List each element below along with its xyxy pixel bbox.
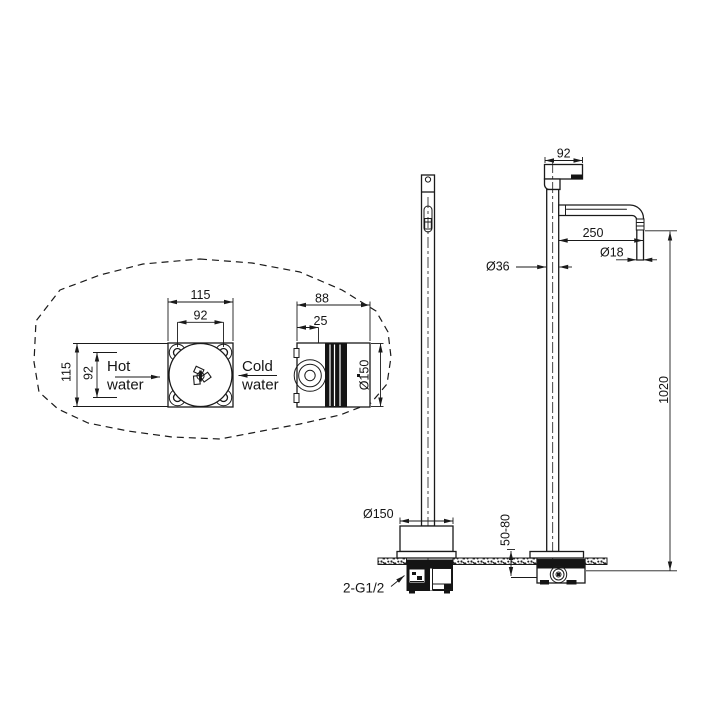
dim-spout-reach: 250 bbox=[559, 226, 644, 241]
dim-label-88: 88 bbox=[315, 292, 329, 306]
dim-label-115-width: 115 bbox=[191, 288, 211, 302]
valve-box-front-view: 115 92 115 92 Hot water bbox=[60, 288, 279, 407]
dim-column-height: 1020 bbox=[586, 231, 677, 571]
handle-hub bbox=[545, 179, 561, 190]
hot-water-label: Hot water bbox=[106, 358, 160, 394]
dim-spout-diameter: Ø18 bbox=[600, 246, 657, 260]
cold-label-line1: Cold bbox=[242, 358, 273, 375]
spout-collar bbox=[636, 219, 644, 230]
dim-label-92-h: 92 bbox=[194, 309, 208, 323]
cold-water-label: Cold water bbox=[239, 358, 279, 394]
dim-label-50-80: 50-80 bbox=[499, 514, 513, 546]
rough-in-box-front bbox=[407, 560, 454, 594]
dim-label-250: 250 bbox=[583, 226, 604, 240]
hot-label-line2: water bbox=[106, 377, 144, 394]
dim-floor-embed-depth: 50-80 bbox=[499, 514, 538, 578]
dim-side-box-depth: 88 bbox=[297, 292, 370, 342]
dim-label-92-handle: 92 bbox=[557, 147, 571, 161]
base-flange-front bbox=[397, 552, 456, 559]
dim-handle-length: 92 bbox=[545, 147, 583, 164]
dim-label-d36: Ø36 bbox=[486, 260, 510, 274]
dim-label-25: 25 bbox=[314, 314, 328, 328]
handle-tip-icon bbox=[571, 175, 583, 180]
dim-front-box-hole-spacing-h: 92 bbox=[178, 309, 224, 348]
connection-callout: 2-G1/2 bbox=[343, 576, 405, 596]
hot-label-line1: Hot bbox=[107, 358, 131, 375]
rough-in-box-side bbox=[537, 560, 585, 585]
base-plate-side bbox=[530, 552, 584, 559]
dim-label-d150-box: Ø150 bbox=[358, 360, 372, 391]
dim-label-d18: Ø18 bbox=[600, 246, 624, 260]
dim-label-1020: 1020 bbox=[657, 376, 671, 404]
connection-label: 2-G1/2 bbox=[343, 581, 384, 596]
dim-base-diameter: Ø150 bbox=[363, 507, 453, 524]
dim-label-d150-base: Ø150 bbox=[363, 507, 394, 521]
valve-box-side-view: 88 25 Ø150 bbox=[294, 292, 384, 408]
mounting-sleeve-section bbox=[325, 344, 347, 407]
leader-arrow-icon bbox=[391, 576, 405, 587]
base-cover-front bbox=[400, 526, 453, 552]
technical-drawing-canvas: 115 92 115 92 Hot water bbox=[0, 0, 720, 720]
dim-label-92-v: 92 bbox=[82, 366, 96, 380]
installation-drawing: 115 92 115 92 Hot water bbox=[0, 0, 720, 720]
dim-side-box-offset: 25 bbox=[297, 314, 327, 343]
cold-label-line2: water bbox=[241, 377, 279, 394]
faucet-side-view: 92 250 Ø18 Ø36 bbox=[486, 147, 677, 585]
dim-label-115-height: 115 bbox=[60, 362, 74, 382]
